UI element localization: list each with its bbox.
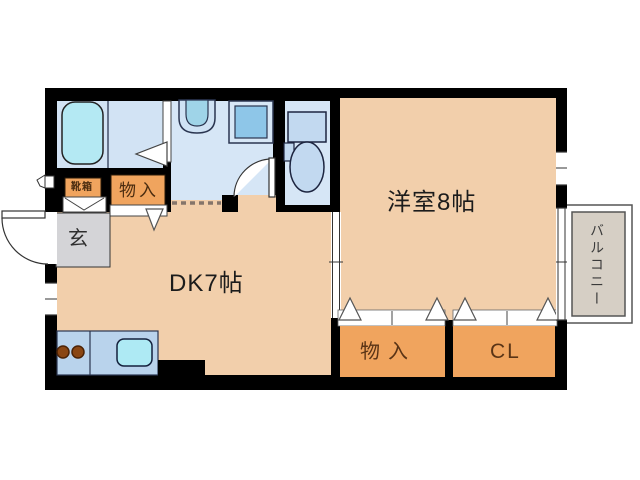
kitchen-sink bbox=[117, 339, 152, 366]
sliding-door-dk bbox=[329, 212, 343, 318]
entrance-label: 玄 bbox=[68, 229, 88, 249]
storage-top-label: 物入 bbox=[119, 182, 159, 199]
stove-burner bbox=[72, 346, 84, 358]
wall-step bbox=[158, 360, 205, 376]
kitchen-counter bbox=[57, 331, 158, 375]
bathtub bbox=[62, 102, 103, 164]
dining-kitchen-label: DK7帖 bbox=[169, 272, 244, 296]
shoe-box-label: 靴箱 bbox=[71, 183, 93, 193]
western-room-label: 洋室8帖 bbox=[387, 191, 476, 215]
cl-label: CL bbox=[490, 341, 521, 362]
floor-plan-drawing bbox=[0, 0, 640, 480]
stove-burner bbox=[57, 346, 69, 358]
entrance-opening bbox=[45, 212, 57, 264]
shoe-box-door-marker bbox=[63, 197, 106, 212]
balcony-label: バルコニー bbox=[590, 223, 604, 308]
floor-plan: 洋室8帖 DK7帖 物入 CL 玄 靴箱 物入 バルコニー bbox=[0, 0, 640, 480]
washbasin bbox=[179, 100, 215, 133]
window-left bbox=[45, 283, 57, 315]
storage-bottom-label: 物入 bbox=[360, 342, 416, 362]
balcony-window bbox=[556, 208, 567, 320]
window-right-upper bbox=[556, 152, 567, 185]
doorbell-icon bbox=[37, 175, 54, 188]
washing-machine-pan bbox=[229, 101, 273, 143]
entrance-door-swing bbox=[2, 211, 48, 264]
hall-floor bbox=[171, 200, 222, 214]
